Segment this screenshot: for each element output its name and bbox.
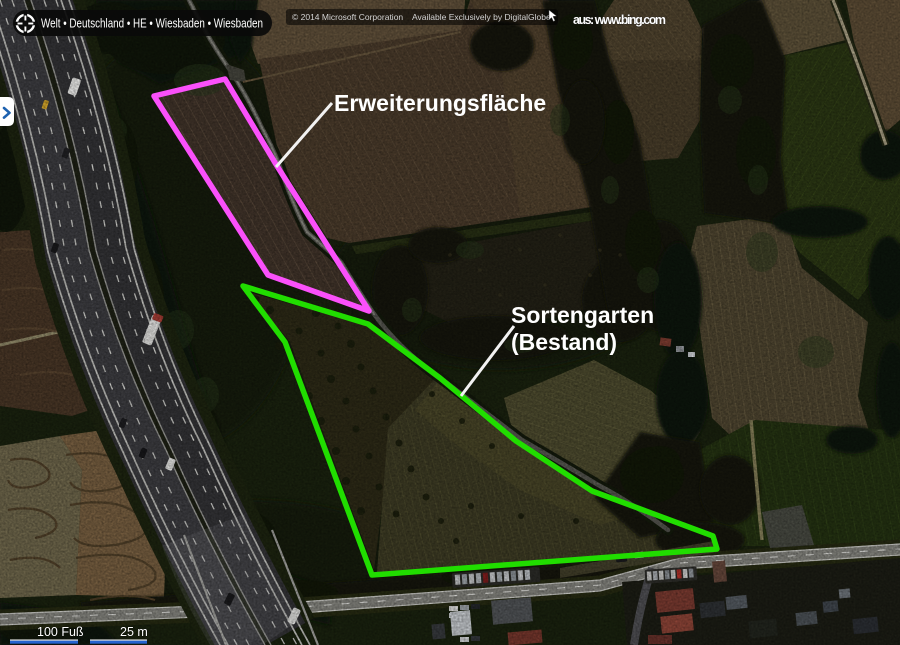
svg-text:100 Fuß: 100 Fuß (37, 625, 84, 639)
svg-text:(Bestand): (Bestand) (511, 329, 617, 355)
svg-text:© 2014 Microsoft Corporation: © 2014 Microsoft Corporation (292, 12, 403, 22)
svg-text:Available Exclusively by Digit: Available Exclusively by DigitalGlobe (412, 12, 551, 22)
svg-text:Erweiterungsfläche: Erweiterungsfläche (334, 90, 546, 116)
svg-text:25 m: 25 m (120, 625, 148, 639)
svg-text:aus: www.bing.com: aus: www.bing.com (573, 13, 666, 27)
svg-text:Welt • Deutschland • HE • Wies: Welt • Deutschland • HE • Wiesbaden • Wi… (41, 17, 263, 31)
svg-text:Sortengarten: Sortengarten (511, 302, 654, 328)
